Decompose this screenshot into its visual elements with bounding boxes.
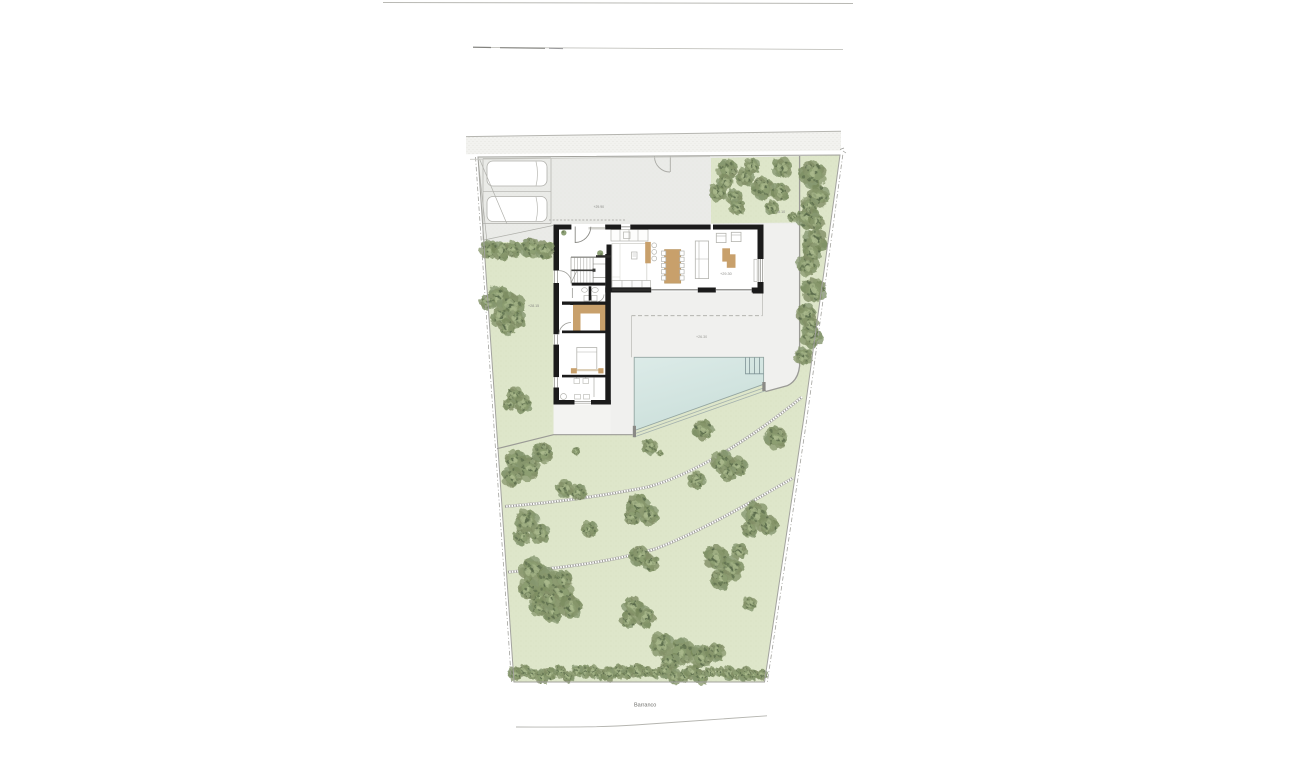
svg-text:+26.30: +26.30 [696, 335, 707, 339]
svg-text:Barranco: Barranco [634, 703, 656, 709]
svg-text:+28.15: +28.15 [528, 304, 539, 308]
svg-text:+29.90: +29.90 [594, 205, 605, 209]
svg-text:+29.30: +29.30 [720, 272, 732, 276]
